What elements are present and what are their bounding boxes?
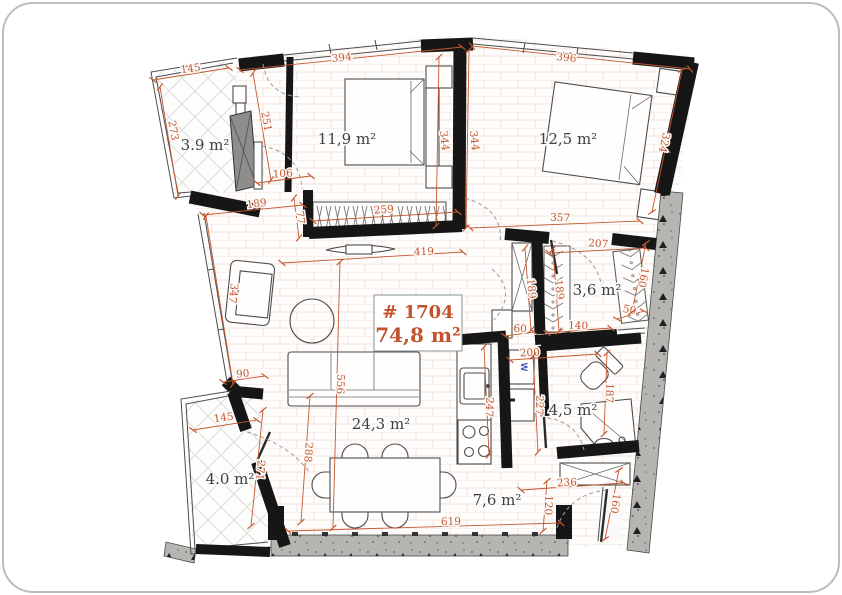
wall-block [268,506,284,540]
dimension-label: 189 [246,197,267,211]
dimension-label: 189 [552,279,566,300]
room-label-bedroom-1: 11,9 m² [318,130,376,148]
dimension-label: 227 [533,395,546,415]
room-label-bedroom-2: 12,5 m² [539,130,597,148]
room-label-hall: 7,6 m² [473,491,522,509]
dimension-label: 344 [467,130,481,152]
dimension-label: 106 [272,167,293,180]
dimension-label: 344 [437,130,451,152]
dimension-label: 200 [520,346,541,359]
dimension-label: 189 [524,278,538,299]
dimension-label: 556 [334,374,347,395]
room-label-balcony-lower: 4.0 m² [206,470,255,488]
dimension-label: 419 [414,246,434,259]
dimension-label: 140 [568,320,588,333]
floor-plan-page: W [0,0,842,595]
dimension-label: 60 [513,323,527,335]
dimension-label: 357 [550,211,571,224]
unit-area: 74,8 m² [375,323,461,347]
dimension-label: 247 [483,397,496,417]
dimension-label: 120 [542,495,555,515]
wall-block-entry [556,505,572,539]
terrace-edge [271,535,568,556]
dimension-label: 187 [603,383,616,403]
dimension-label: 396 [556,51,578,65]
dimension-label: 90 [236,367,250,380]
room-label-bathroom: 4,5 m² [549,401,598,419]
dimension-label: 288 [301,442,314,463]
floor-plan-canvas: W [0,0,842,595]
dimension-label: 347 [226,283,240,304]
dimension-label: 619 [441,516,461,528]
dimension-label: 77 [293,210,307,225]
unit-number: # 1704 [382,302,453,323]
dimension-label: 207 [588,237,609,250]
washer-label: W [519,363,529,372]
dimension-label: 271 [253,460,266,481]
dining-table [330,458,440,512]
fridge [509,389,534,421]
room-label-balcony-upper: 3.9 m² [181,136,230,154]
room-label-living: 24,3 m² [352,415,410,433]
dimension-label: 259 [373,203,394,216]
unit-title-box: # 1704 74,8 m² [374,295,462,351]
dimension-label: 236 [557,476,578,489]
room-label-wardrobe: 3,6 m² [573,281,622,299]
dimension-label: 394 [331,51,353,65]
faucet-icon [486,384,490,388]
